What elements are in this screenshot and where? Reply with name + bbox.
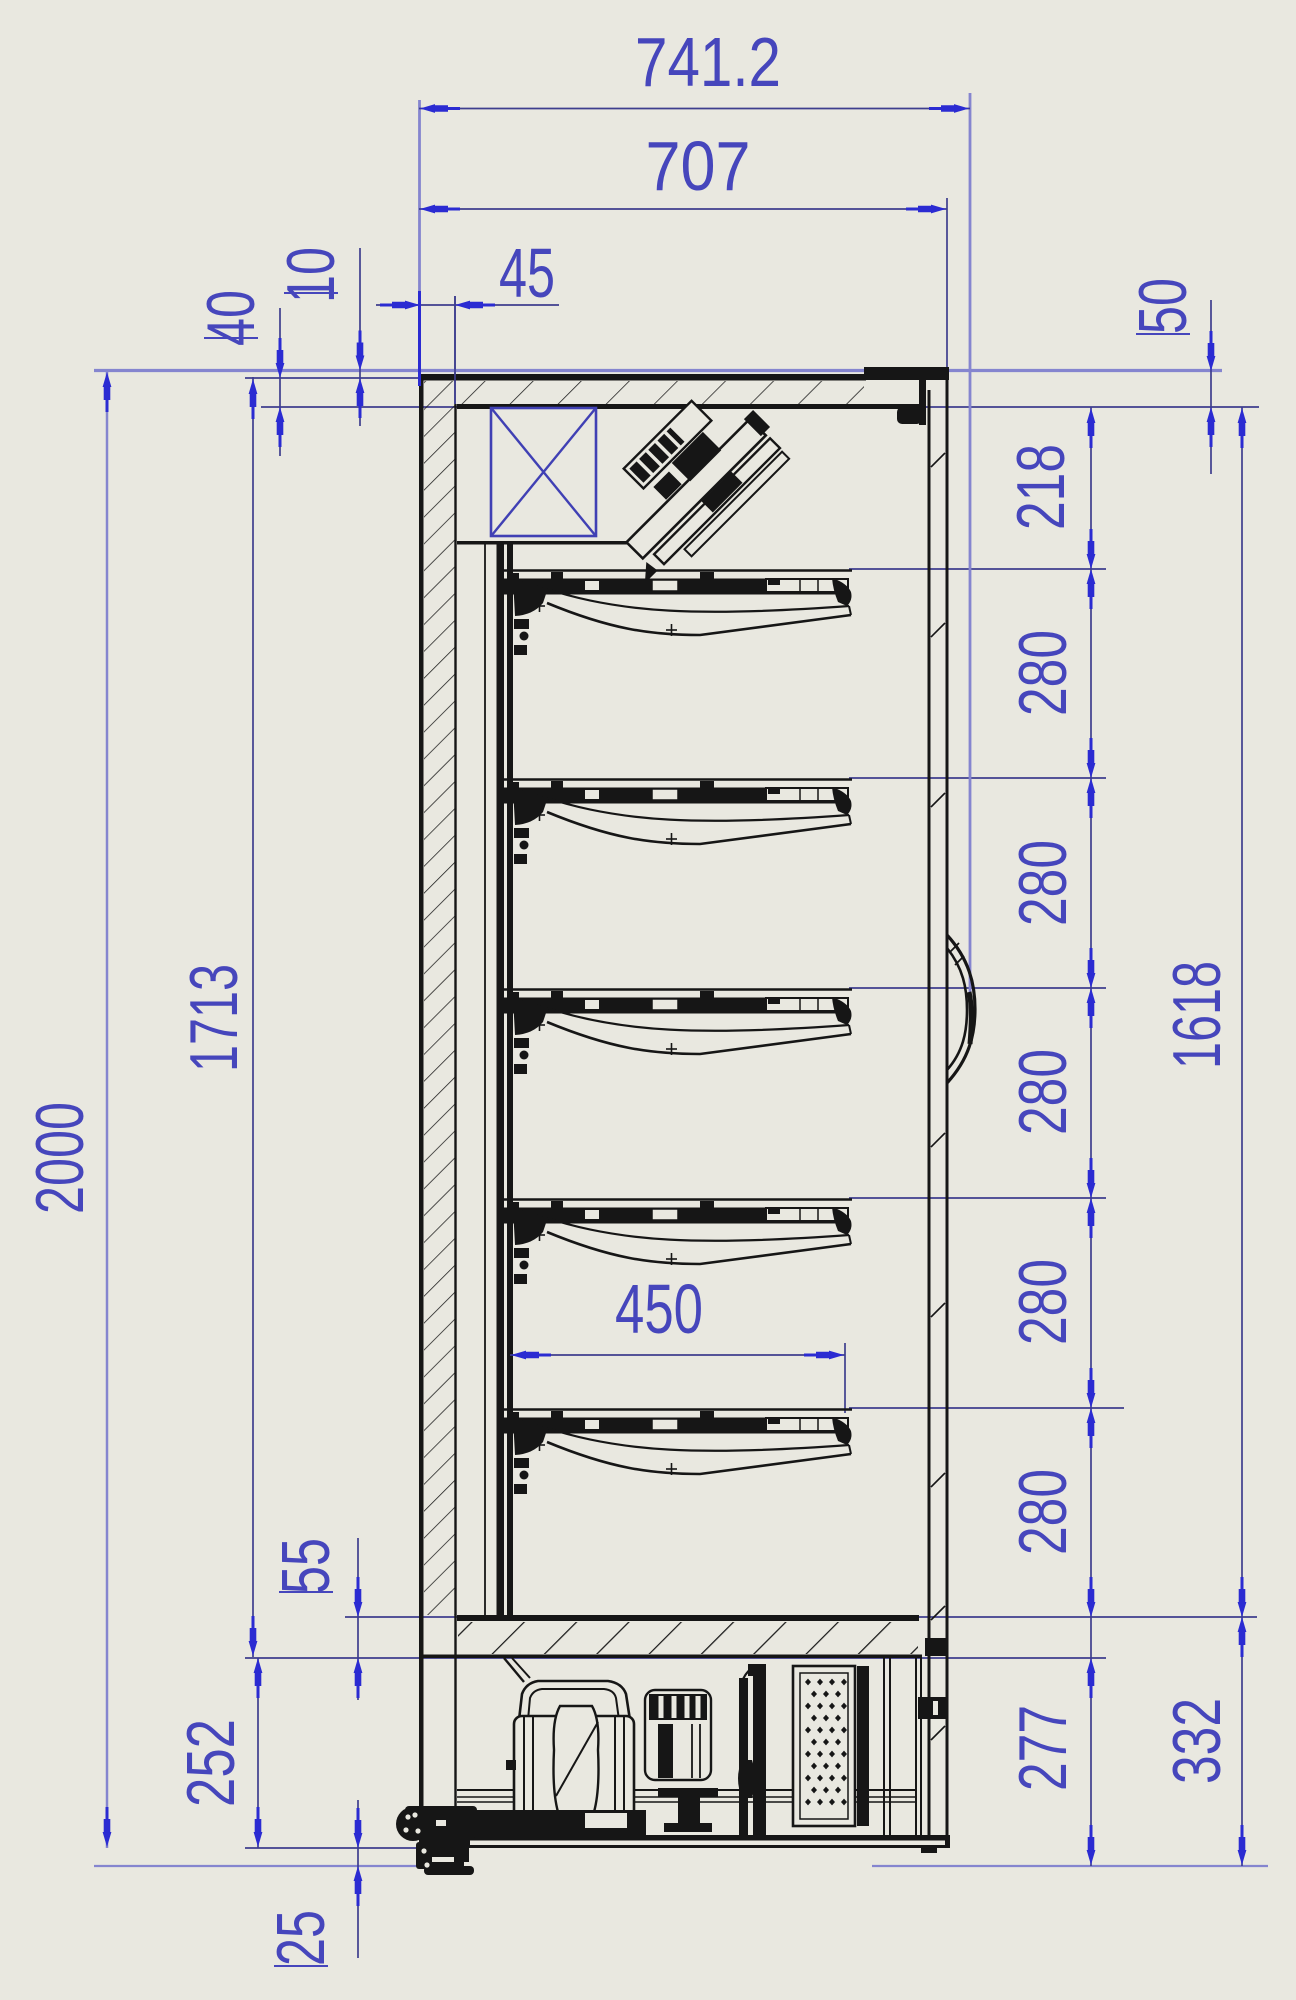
- svg-text:332: 332: [1159, 1698, 1235, 1784]
- svg-text:707: 707: [646, 127, 751, 205]
- svg-text:280: 280: [1005, 1259, 1081, 1345]
- svg-text:280: 280: [1005, 840, 1081, 926]
- svg-text:45: 45: [499, 234, 555, 312]
- svg-text:2000: 2000: [22, 1102, 98, 1214]
- svg-text:450: 450: [615, 1270, 703, 1348]
- svg-text:50: 50: [1125, 278, 1201, 334]
- svg-text:280: 280: [1005, 1049, 1081, 1135]
- svg-text:10: 10: [273, 247, 349, 303]
- svg-text:741.2: 741.2: [635, 23, 781, 101]
- svg-text:280: 280: [1005, 630, 1081, 716]
- svg-text:252: 252: [173, 1719, 249, 1807]
- svg-text:218: 218: [1003, 444, 1079, 530]
- svg-text:277: 277: [1005, 1705, 1081, 1791]
- svg-text:1713: 1713: [176, 964, 252, 1072]
- svg-text:280: 280: [1005, 1469, 1081, 1555]
- svg-text:55: 55: [268, 1538, 344, 1594]
- svg-text:1618: 1618: [1159, 961, 1235, 1069]
- svg-text:25: 25: [263, 1910, 339, 1966]
